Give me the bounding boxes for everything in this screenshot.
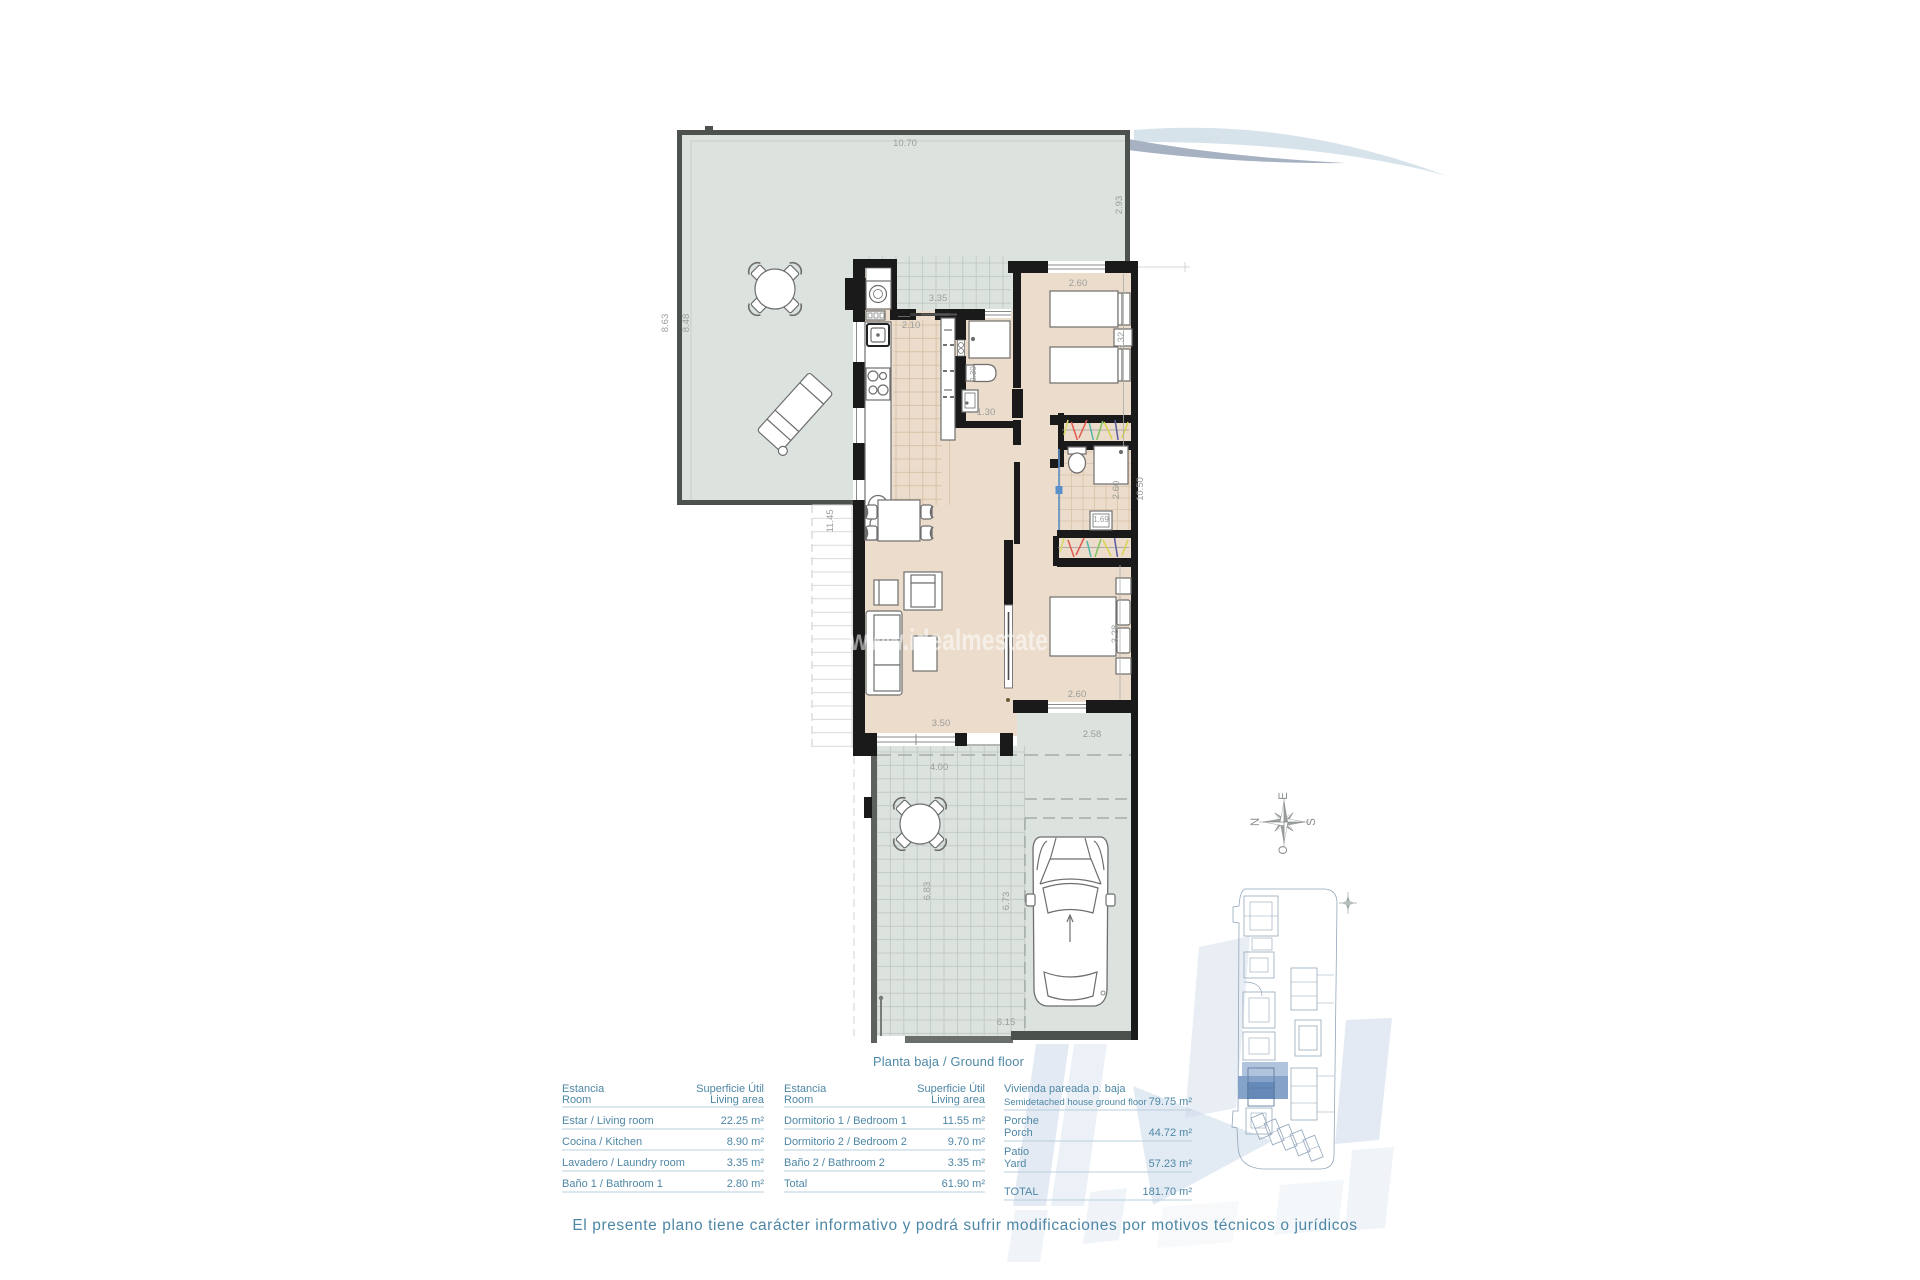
svg-text:Porch: Porch [1004,1127,1033,1139]
svg-text:Cocina / Kitchen: Cocina / Kitchen [562,1136,642,1148]
svg-text:10.50: 10.50 [1135,477,1146,501]
svg-text:11.45: 11.45 [825,509,836,532]
svg-text:3.35 m²: 3.35 m² [727,1157,765,1169]
svg-text:1.30: 1.30 [977,407,996,418]
svg-text:8.90 m²: 8.90 m² [727,1136,765,1148]
svg-text:Yard: Yard [1004,1158,1026,1170]
svg-text:3.32: 3.32 [1116,332,1127,351]
svg-text:2.60: 2.60 [1068,689,1087,700]
svg-text:Lavadero / Laundry room: Lavadero / Laundry room [562,1157,685,1169]
svg-text:Patio: Patio [1004,1146,1029,1158]
svg-text:3.28: 3.28 [1110,625,1121,644]
svg-text:Living area: Living area [710,1094,765,1106]
svg-text:2.93: 2.93 [1114,196,1125,215]
svg-text:El presente plano tiene caráct: El presente plano tiene carácter informa… [572,1217,1357,1234]
svg-text:2.30: 2.30 [969,366,978,382]
svg-text:2.60: 2.60 [1111,481,1122,500]
svg-text:3.35: 3.35 [929,293,948,304]
svg-text:Dormitorio 1 / Bedroom 1: Dormitorio 1 / Bedroom 1 [784,1115,907,1127]
svg-text:Baño 1 / Bathroom 1: Baño 1 / Bathroom 1 [562,1178,663,1190]
svg-text:S: S [1306,818,1318,826]
svg-text:9.70 m²: 9.70 m² [948,1136,986,1148]
svg-text:8.63: 8.63 [660,314,671,333]
svg-text:Planta baja / Ground floor: Planta baja / Ground floor [873,1054,1025,1069]
svg-text:44.72 m²: 44.72 m² [1149,1127,1193,1139]
svg-text:O: O [1278,845,1290,854]
svg-text:11.55 m²: 11.55 m² [942,1115,985,1127]
svg-text:E: E [1278,792,1290,800]
svg-text:www.idealmestate: www.idealmestate [849,624,1048,657]
svg-text:Baño 2 / Bathroom 2: Baño 2 / Bathroom 2 [784,1157,885,1169]
svg-text:Estar / Living room: Estar / Living room [562,1115,654,1127]
svg-text:2.58: 2.58 [1083,729,1102,740]
svg-text:2.10: 2.10 [902,320,921,331]
svg-text:N: N [1250,818,1262,826]
svg-text:6.15: 6.15 [997,1017,1016,1028]
svg-text:Room: Room [784,1094,813,1106]
svg-text:Dormitorio 2 / Bedroom 2: Dormitorio 2 / Bedroom 2 [784,1136,907,1148]
svg-text:61.90 m²: 61.90 m² [942,1178,986,1190]
svg-text:TOTAL: TOTAL [1004,1186,1038,1198]
svg-text:181.70 m²: 181.70 m² [1142,1186,1192,1198]
svg-text:Vivienda pareada p. baja: Vivienda pareada p. baja [1004,1083,1126,1095]
svg-text:Room: Room [562,1094,591,1106]
svg-text:6.73: 6.73 [1001,892,1012,911]
svg-text:4.00: 4.00 [930,762,949,773]
svg-text:79.75 m²: 79.75 m² [1149,1096,1193,1108]
svg-text:8.48: 8.48 [681,314,692,333]
svg-text:1.69: 1.69 [1093,515,1109,524]
svg-text:22.25 m²: 22.25 m² [721,1115,765,1127]
svg-text:Living area: Living area [931,1094,986,1106]
svg-text:6.83: 6.83 [922,882,933,901]
svg-text:3.35 m²: 3.35 m² [948,1157,986,1169]
svg-text:Semidetached house ground floo: Semidetached house ground floor [1004,1097,1147,1108]
svg-text:2.80 m²: 2.80 m² [727,1178,765,1190]
svg-text:57.23 m²: 57.23 m² [1149,1158,1193,1170]
svg-text:3.50: 3.50 [932,718,951,729]
svg-text:Porche: Porche [1004,1115,1039,1127]
svg-text:Total: Total [784,1178,807,1190]
svg-text:2.60: 2.60 [1069,278,1088,289]
svg-text:10.70: 10.70 [893,138,917,149]
